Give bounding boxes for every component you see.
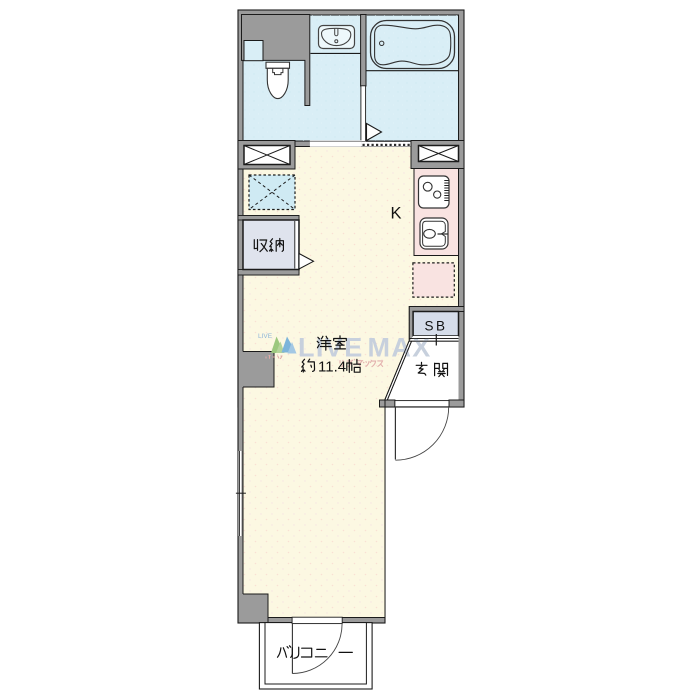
svg-text:K: K (391, 205, 402, 223)
svg-text:MAX: MAX (368, 333, 432, 363)
svg-text:LIVE: LIVE (258, 333, 273, 340)
svg-text:SB: SB (425, 319, 448, 334)
svg-text:11.4: 11.4 (318, 358, 346, 375)
